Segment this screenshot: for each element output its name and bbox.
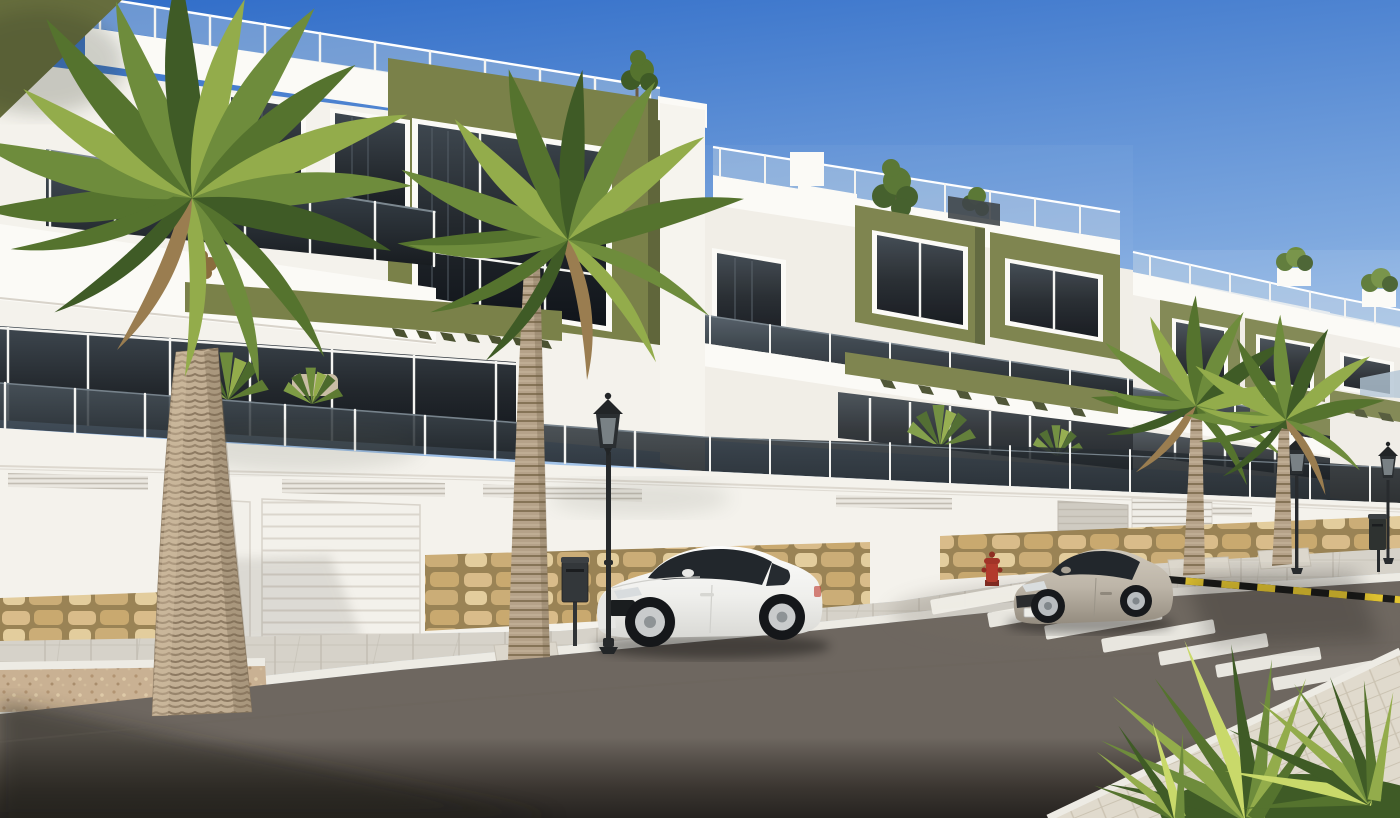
render-canvas: New-build apartment complex — sunny stre…: [0, 0, 1400, 818]
scene-architectural-render: New-build apartment complex — sunny stre…: [0, 0, 1400, 818]
frond-shadow: [550, 480, 730, 516]
building-2: [703, 145, 1133, 475]
mirror: [1061, 567, 1071, 574]
mirror: [682, 569, 694, 577]
door-handle: [1100, 592, 1112, 595]
palm-shadow-on-road: [1185, 570, 1380, 648]
door-handle: [700, 593, 714, 596]
taillight: [814, 586, 821, 597]
